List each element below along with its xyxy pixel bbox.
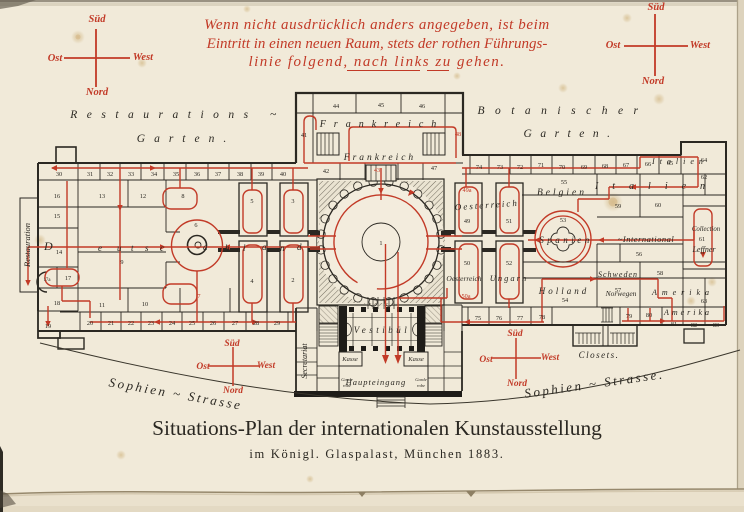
svg-text:45: 45 [378, 102, 384, 109]
svg-text:32: 32 [107, 171, 113, 178]
svg-text:Closets.: Closets. [579, 350, 620, 360]
svg-text:36: 36 [194, 171, 200, 178]
svg-text:West: West [133, 52, 154, 63]
svg-text:37: 37 [215, 171, 221, 178]
svg-text:Restauration: Restauration [22, 223, 32, 268]
svg-text:robe: robe [417, 383, 425, 388]
svg-text:54: 54 [562, 297, 569, 304]
svg-text:d: d [297, 242, 302, 252]
svg-text:Leffner: Leffner [691, 245, 716, 254]
svg-text:69: 69 [581, 164, 587, 171]
svg-text:10: 10 [142, 301, 148, 308]
svg-text:28: 28 [253, 320, 259, 327]
svg-text:31: 31 [87, 171, 93, 178]
svg-text:Ost: Ost [479, 355, 493, 365]
svg-text:17a: 17a [44, 278, 52, 283]
svg-text:58: 58 [657, 270, 663, 277]
svg-text:72: 72 [517, 164, 523, 171]
svg-text:67: 67 [623, 162, 629, 169]
svg-text:49: 49 [464, 218, 470, 225]
svg-text:78: 78 [539, 314, 545, 321]
svg-text:44: 44 [333, 103, 340, 110]
svg-text:75: 75 [475, 315, 481, 322]
svg-text:Frankreich: Frankreich [319, 119, 445, 130]
svg-text:62: 62 [701, 174, 707, 181]
svg-text:West: West [541, 353, 560, 363]
svg-text:Collection: Collection [692, 226, 721, 233]
svg-text:81: 81 [671, 321, 677, 328]
svg-text:3: 3 [291, 198, 294, 205]
svg-text:Restaurations ~: Restaurations ~ [69, 109, 286, 121]
svg-text:Garde: Garde [415, 377, 427, 382]
svg-text:76: 76 [496, 315, 502, 322]
svg-text:Holland: Holland [538, 286, 590, 296]
svg-text:18: 18 [54, 300, 60, 307]
svg-text:74: 74 [476, 164, 483, 171]
svg-text:Garde: Garde [341, 377, 353, 382]
svg-text:7: 7 [197, 293, 200, 300]
svg-text:Ost: Ost [48, 53, 64, 64]
svg-text:40: 40 [280, 171, 286, 178]
svg-text:15: 15 [54, 213, 60, 220]
svg-text:38: 38 [237, 171, 243, 178]
svg-text:Kasse: Kasse [341, 356, 358, 363]
svg-text:Kasse: Kasse [407, 356, 424, 363]
svg-text:34: 34 [151, 171, 158, 178]
svg-text:Italien: Italien [594, 181, 719, 192]
svg-text:West: West [690, 40, 711, 51]
svg-text:~International: ~International [618, 234, 675, 244]
svg-text:h: h [225, 243, 230, 253]
svg-text:49a: 49a [462, 187, 471, 194]
svg-text:Schweden: Schweden [598, 270, 638, 279]
svg-text:21: 21 [108, 320, 114, 327]
svg-text:Wenn nicht ausdrücklich anders: Wenn nicht ausdrücklich anders angegeben… [204, 17, 550, 33]
svg-text:Nord: Nord [641, 76, 665, 87]
svg-text:a: a [203, 242, 208, 252]
svg-text:u: u [117, 243, 122, 253]
svg-text:35: 35 [173, 171, 179, 178]
svg-text:16: 16 [54, 193, 60, 200]
svg-text:Belgien: Belgien [537, 188, 587, 198]
svg-text:50: 50 [464, 260, 470, 267]
svg-text:e: e [98, 243, 102, 253]
svg-text:47: 47 [431, 165, 437, 172]
svg-text:14: 14 [56, 249, 63, 256]
svg-text:23: 23 [148, 320, 154, 327]
svg-text:Garten.: Garten. [524, 128, 619, 140]
svg-text:1: 1 [379, 240, 382, 247]
svg-text:Ost: Ost [606, 40, 622, 51]
svg-text:29: 29 [274, 320, 280, 327]
svg-text:52: 52 [506, 260, 512, 267]
svg-text:13: 13 [99, 193, 105, 200]
svg-text:12: 12 [140, 193, 146, 200]
svg-text:8: 8 [181, 193, 184, 200]
svg-text:c: c [160, 243, 164, 253]
svg-text:68: 68 [602, 163, 608, 170]
svg-text:22: 22 [128, 320, 134, 327]
svg-text:a: a [262, 242, 267, 252]
svg-text:82: 82 [691, 322, 697, 329]
svg-text:55: 55 [561, 179, 567, 186]
svg-text:80: 80 [646, 312, 652, 319]
svg-text:71: 71 [538, 162, 544, 169]
svg-text:West: West [257, 361, 276, 371]
svg-text:83: 83 [713, 322, 719, 329]
svg-text:robe: robe [343, 383, 351, 388]
svg-text:Süd: Süd [507, 329, 523, 339]
svg-text:61: 61 [699, 236, 705, 243]
svg-text:42: 42 [323, 168, 329, 175]
svg-text:Norwegen: Norwegen [605, 289, 637, 298]
svg-text:6: 6 [194, 222, 197, 229]
svg-text:63: 63 [701, 298, 707, 305]
svg-text:Situations-Plan der internatio: Situations-Plan der internationalen Kuns… [152, 416, 602, 440]
svg-text:53: 53 [560, 217, 566, 224]
svg-text:Ost: Ost [196, 362, 210, 372]
svg-text:Amerika: Amerika [663, 308, 712, 317]
svg-text:25: 25 [189, 320, 195, 327]
svg-text:24: 24 [169, 320, 176, 327]
svg-text:2: 2 [291, 277, 294, 284]
svg-text:Süd: Süd [648, 2, 666, 13]
svg-text:Haupteingang: Haupteingang [345, 377, 407, 387]
svg-text:59: 59 [615, 203, 621, 210]
svg-text:56: 56 [636, 251, 642, 258]
svg-text:27: 27 [232, 320, 238, 327]
svg-text:41: 41 [301, 132, 307, 139]
svg-text:48: 48 [455, 131, 461, 138]
svg-text:66: 66 [645, 161, 651, 168]
svg-text:19: 19 [45, 323, 51, 330]
svg-text:43: 43 [374, 167, 380, 174]
svg-text:73: 73 [497, 164, 503, 171]
svg-text:5: 5 [250, 198, 253, 205]
svg-text:im Königl. Glaspalast, München: im Königl. Glaspalast, München 1883. [249, 447, 504, 461]
svg-text:Eintritt in einen neuen Raum,: Eintritt in einen neuen Raum, stets der … [206, 36, 548, 52]
svg-text:39: 39 [258, 171, 264, 178]
svg-text:70: 70 [559, 164, 565, 171]
svg-text:30: 30 [56, 171, 62, 178]
svg-text:51: 51 [506, 218, 512, 225]
svg-text:Secretariat: Secretariat [300, 343, 309, 379]
svg-text:9: 9 [120, 259, 123, 266]
svg-text:Nord: Nord [85, 87, 109, 98]
svg-text:D: D [43, 239, 53, 253]
svg-text:Italien: Italien [651, 157, 708, 166]
svg-text:Garten.: Garten. [137, 133, 235, 145]
svg-text:46: 46 [419, 103, 425, 110]
svg-text:17: 17 [65, 275, 71, 282]
svg-text:Ungarn: Ungarn [490, 273, 528, 283]
svg-text:n: n [280, 243, 285, 253]
svg-text:79: 79 [626, 313, 632, 320]
svg-text:50a: 50a [461, 293, 470, 300]
svg-text:s: s [145, 243, 149, 253]
svg-text:Spanien: Spanien [539, 235, 593, 245]
svg-text:Süd: Süd [224, 339, 240, 349]
svg-text:Botanischer: Botanischer [477, 105, 648, 117]
svg-text:20: 20 [87, 320, 93, 327]
svg-text:11: 11 [99, 302, 105, 309]
svg-text:26: 26 [210, 320, 216, 327]
svg-text:Amerika: Amerika [651, 288, 714, 297]
svg-text:Süd: Süd [89, 14, 107, 25]
svg-text:linie folgend, nach links zu g: linie folgend, nach links zu gehen. [248, 54, 505, 70]
svg-text:60: 60 [655, 202, 661, 209]
svg-text:Vestibül: Vestibül [354, 325, 411, 335]
svg-text:Oesterreich: Oesterreich [446, 274, 481, 283]
svg-text:33: 33 [128, 171, 134, 178]
svg-text:Frankreich: Frankreich [343, 153, 416, 163]
svg-text:77: 77 [517, 315, 523, 322]
